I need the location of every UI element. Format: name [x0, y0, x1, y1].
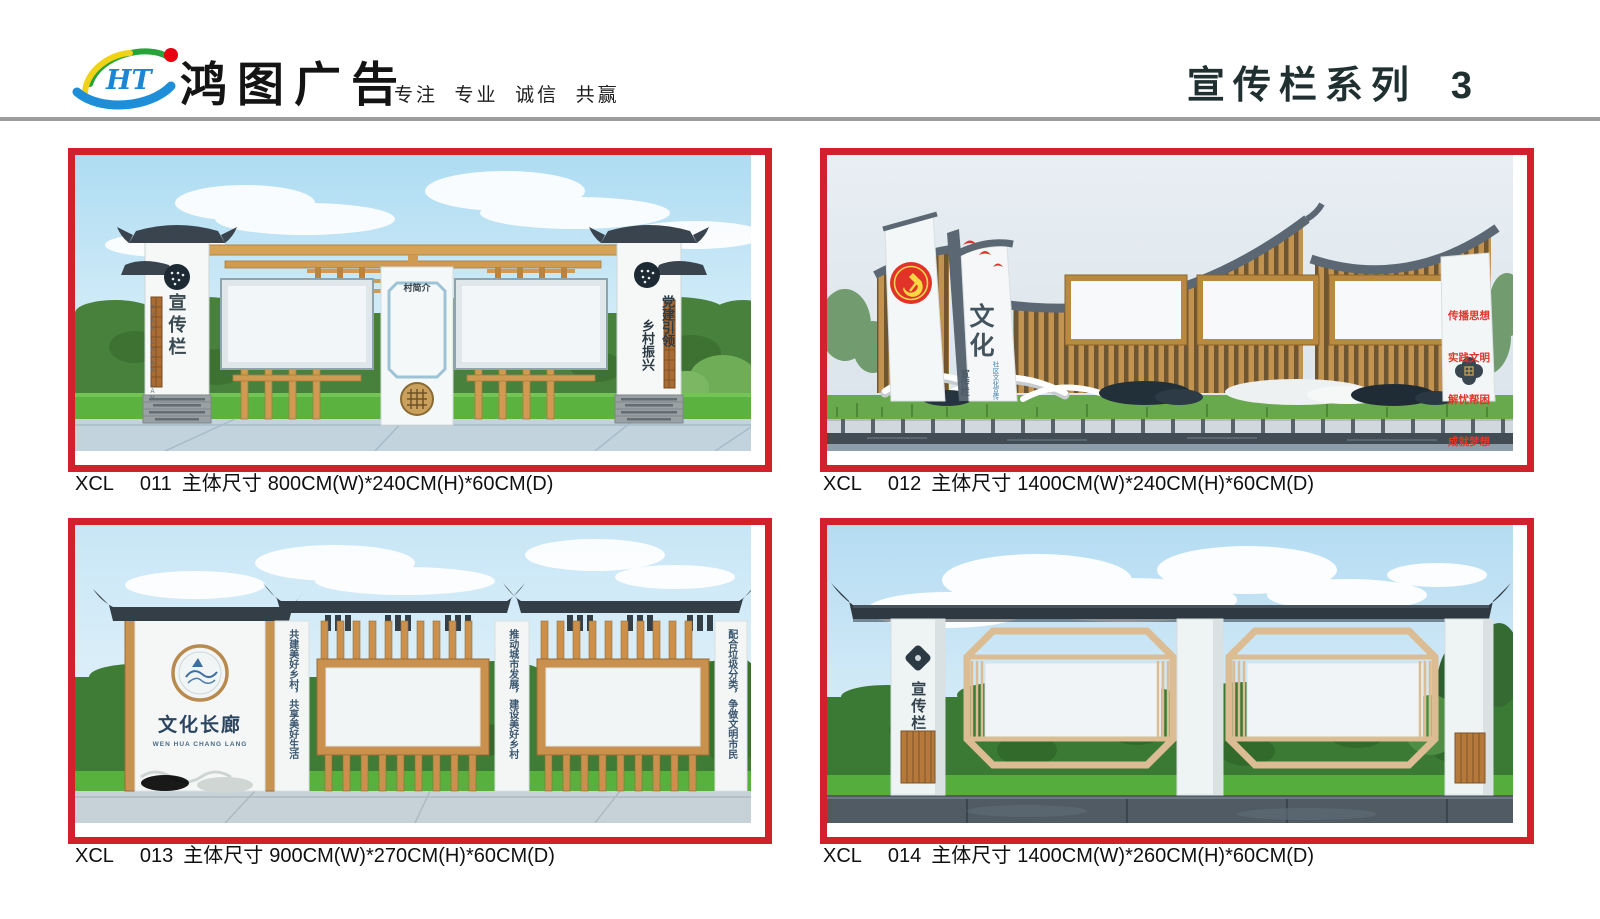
feature-wall: [93, 589, 303, 793]
logo-red-dot-icon: [164, 48, 178, 62]
center-panel-title: 村简介: [381, 284, 453, 294]
product-code: XCL: [823, 473, 862, 495]
party-emblem-icon: [890, 262, 932, 304]
pillar-2-slogan: 推动城市发展，建设美好乡村: [506, 629, 517, 759]
pavement: [827, 795, 1513, 823]
slogan-line-3: 解忧帮困: [1448, 393, 1494, 407]
page-number: 3: [1451, 65, 1472, 107]
product-caption-xcl-014: XCL014主体尺寸1400CM(W)*260CM(H)*60CM(D): [823, 839, 1314, 868]
series-title-block: 宣传栏系列3: [1187, 54, 1472, 109]
round-seal-icon: [164, 264, 190, 290]
pavement: [75, 791, 751, 823]
product-model: 013: [140, 845, 173, 867]
wall-title-en: WEN HUA CHANG LANG: [137, 741, 263, 748]
product-code: XCL: [75, 845, 114, 867]
pillar-right-slogan-col2: 乡村振兴: [639, 319, 653, 371]
product-dimensions: 1400CM(W)*240CM(H)*60CM(D): [1017, 473, 1314, 495]
pylon-sub-title: 宣传栏: [959, 369, 969, 396]
slogan-line-4: 成就梦想: [1448, 435, 1494, 449]
product-dimensions: 900CM(W)*270CM(H)*60CM(D): [269, 845, 555, 867]
company-logo: HT: [72, 42, 184, 110]
pillar-3-slogan: 配合垃圾分类，争做文明市民: [725, 629, 736, 759]
product-card-xcl-011: 宣传栏 XUAN CHUAN LAN 党建引领 乡村振兴 村简介: [68, 148, 772, 472]
product-card-xcl-014: 宣传栏: [820, 518, 1534, 844]
product-card-xcl-012: 文化 宣传栏 社区文化宣传 传播思想 实践文明 解忧帮困 成就梦想: [820, 148, 1534, 472]
display-board-right: [455, 279, 607, 369]
size-label: 主体尺寸: [931, 845, 1011, 867]
pylon-main-title: 文化: [967, 303, 994, 361]
size-label: 主体尺寸: [931, 473, 1011, 495]
road: [827, 433, 1513, 451]
header-divider: [0, 117, 1600, 121]
product-image-xcl-011: 宣传栏 XUAN CHUAN LAN 党建引领 乡村振兴 村简介: [75, 155, 765, 465]
series-title: 宣传栏系列: [1187, 65, 1417, 107]
display-board-left: [221, 279, 373, 369]
end-pillar-slogan: 传播思想 实践文明 解忧帮困 成就梦想: [1448, 281, 1494, 465]
display-boards: [1065, 275, 1451, 345]
company-name: 鸿图广告: [180, 46, 408, 115]
logo-letters: HT: [105, 65, 154, 96]
size-label: 主体尺寸: [183, 845, 263, 867]
product-image-xcl-014: 宣传栏: [827, 525, 1527, 837]
product-model: 014: [888, 845, 921, 867]
pylon-side-note: 社区文化宣传: [991, 361, 998, 400]
product-code: XCL: [75, 473, 114, 495]
curb: [827, 419, 1513, 433]
round-seal-icon: [634, 262, 660, 288]
catalog-page: HT 鸿图广告 专注 专业 诚信 共赢 宣传栏系列3: [0, 0, 1600, 919]
product-code: XCL: [823, 845, 862, 867]
product-dimensions: 1400CM(W)*260CM(H)*60CM(D): [1017, 845, 1314, 867]
ht-swoosh-logo: HT: [77, 48, 178, 105]
slogan-line-1: 传播思想: [1448, 309, 1494, 323]
size-label: 主体尺寸: [182, 473, 262, 495]
landscape-medallion-icon: [173, 646, 227, 700]
product-caption-xcl-012: XCL012主体尺寸1400CM(W)*240CM(H)*60CM(D): [823, 467, 1314, 496]
company-slogan: 专注 专业 诚信 共赢: [394, 80, 620, 107]
product-model: 011: [140, 473, 172, 495]
pillar-left-title: 宣传栏: [910, 681, 926, 732]
product-dimensions: 800CM(W)*240CM(H)*60CM(D): [268, 473, 554, 495]
pillar-right-slogan-col1: 党建引领: [659, 295, 673, 347]
product-caption-xcl-011: XCL011主体尺寸800CM(W)*240CM(H)*60CM(D): [75, 467, 553, 496]
wall-title: 文化长廊: [137, 715, 263, 736]
pillar-center: [1177, 619, 1223, 795]
product-card-xcl-013: 文化长廊 WEN HUA CHANG LANG 共建美好乡村，共享美好生活 推动…: [68, 518, 772, 844]
product-image-xcl-013: 文化长廊 WEN HUA CHANG LANG 共建美好乡村，共享美好生活 推动…: [75, 525, 765, 837]
product-caption-xcl-013: XCL013主体尺寸900CM(W)*270CM(H)*60CM(D): [75, 839, 555, 868]
slogan-line-2: 实践文明: [1448, 351, 1494, 365]
pillar-1-slogan: 共建美好乡村，共享美好生活: [286, 629, 297, 759]
pillar-left-title-en: XUAN CHUAN LAN: [149, 305, 155, 403]
lattice-medallion-icon: [401, 383, 433, 415]
product-image-xcl-012: 文化 宣传栏 社区文化宣传 传播思想 实践文明 解忧帮困 成就梦想: [827, 155, 1527, 465]
pillar-left-title: 宣传栏: [166, 293, 185, 359]
pillar-right: [1445, 619, 1493, 795]
product-model: 012: [888, 473, 921, 495]
